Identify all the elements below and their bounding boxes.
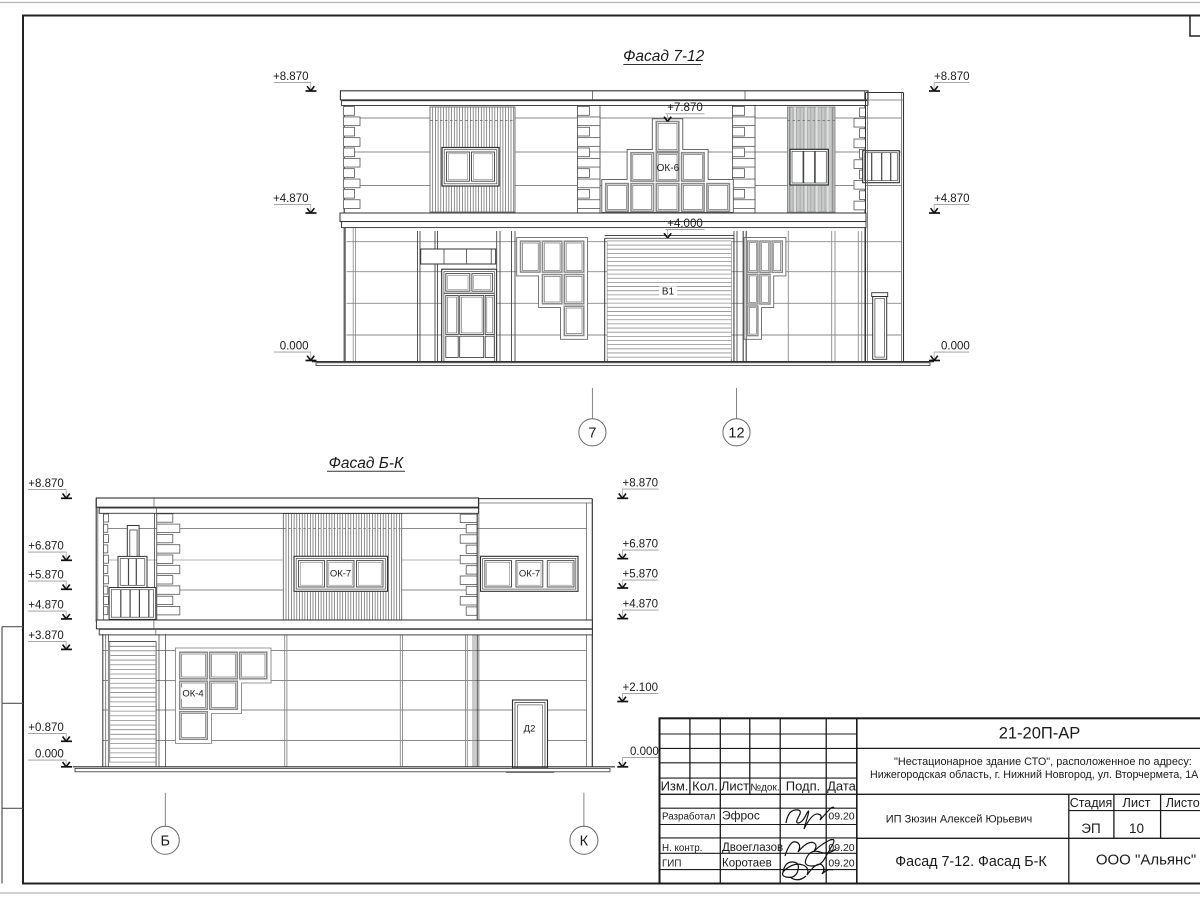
svg-text:№док.: №док. [750, 783, 779, 794]
svg-text:Подп.: Подп. [786, 778, 821, 793]
svg-text:Фасад 7-12: Фасад 7-12 [623, 48, 705, 65]
svg-text:ОК-7: ОК-7 [519, 569, 540, 580]
svg-text:ЭП: ЭП [1081, 821, 1100, 836]
svg-text:+4.870: +4.870 [273, 193, 309, 205]
svg-text:"Нестационарное здание СТО", р: "Нестационарное здание СТО", расположенн… [894, 756, 1192, 768]
svg-text:0.000: 0.000 [941, 341, 970, 353]
svg-text:ОК-4: ОК-4 [182, 689, 203, 700]
svg-text:+0.870: +0.870 [28, 722, 64, 734]
svg-text:Нижегородская область, г. Нижн: Нижегородская область, г. Нижний Новгоро… [870, 769, 1199, 781]
svg-text:ОК-7: ОК-7 [330, 569, 351, 580]
svg-text:ОК-6: ОК-6 [657, 163, 680, 174]
svg-text:Разработал: Разработал [662, 812, 716, 823]
svg-text:Н. контр.: Н. контр. [662, 843, 702, 854]
svg-text:+4.000: +4.000 [667, 218, 703, 230]
svg-text:+8.870: +8.870 [934, 71, 970, 83]
svg-text:09.20: 09.20 [828, 842, 854, 854]
svg-text:Изм.: Изм. [661, 778, 689, 793]
svg-text:7: 7 [588, 426, 596, 442]
svg-text:Кол.: Кол. [692, 778, 718, 793]
svg-text:0.000: 0.000 [630, 746, 659, 758]
svg-text:Стадия: Стадия [1070, 796, 1113, 810]
svg-text:К: К [580, 834, 589, 850]
svg-text:+8.870: +8.870 [273, 71, 309, 83]
svg-text:09.20: 09.20 [828, 811, 854, 823]
svg-text:+6.870: +6.870 [623, 539, 659, 551]
svg-text:21-20П-АР: 21-20П-АР [999, 725, 1081, 743]
svg-text:Б: Б [161, 834, 171, 850]
svg-text:Двоеглазов: Двоеглазов [722, 842, 783, 854]
svg-text:+8.870: +8.870 [623, 478, 659, 490]
svg-text:0.000: 0.000 [35, 749, 64, 761]
svg-text:+4.870: +4.870 [934, 193, 970, 205]
svg-text:+7.870: +7.870 [667, 102, 703, 114]
svg-text:0.000: 0.000 [280, 341, 309, 353]
svg-text:В1: В1 [662, 287, 675, 298]
svg-text:Листов: Листов [1166, 796, 1200, 810]
svg-text:Дата: Дата [827, 778, 857, 793]
svg-text:+6.870: +6.870 [28, 541, 64, 553]
svg-text:Лист: Лист [721, 778, 749, 793]
svg-text:10: 10 [1129, 821, 1144, 836]
svg-text:Фасад Б-К: Фасад Б-К [329, 455, 404, 472]
svg-text:12: 12 [728, 426, 744, 442]
svg-text:Лист: Лист [1122, 795, 1150, 810]
svg-text:+4.870: +4.870 [623, 599, 659, 611]
svg-text:+5.870: +5.870 [623, 569, 659, 581]
svg-text:09.20: 09.20 [828, 858, 854, 870]
svg-text:Фасад 7-12. Фасад Б-К: Фасад 7-12. Фасад Б-К [895, 854, 1047, 870]
svg-text:ООО "Альянс": ООО "Альянс" [1096, 852, 1196, 869]
svg-text:ГИП: ГИП [662, 859, 681, 870]
svg-text:+2.100: +2.100 [623, 682, 659, 694]
svg-text:+3.870: +3.870 [28, 630, 64, 642]
svg-text:Эфрос: Эфрос [722, 809, 760, 823]
svg-text:+4.870: +4.870 [28, 600, 64, 612]
svg-text:Коротаев: Коротаев [722, 858, 772, 870]
svg-text:+5.870: +5.870 [28, 570, 64, 582]
svg-text:Д2: Д2 [524, 724, 536, 735]
svg-text:ИП Зюзин Алексей Юрьевич: ИП Зюзин Алексей Юрьевич [886, 814, 1033, 826]
svg-text:+8.870: +8.870 [28, 478, 64, 490]
